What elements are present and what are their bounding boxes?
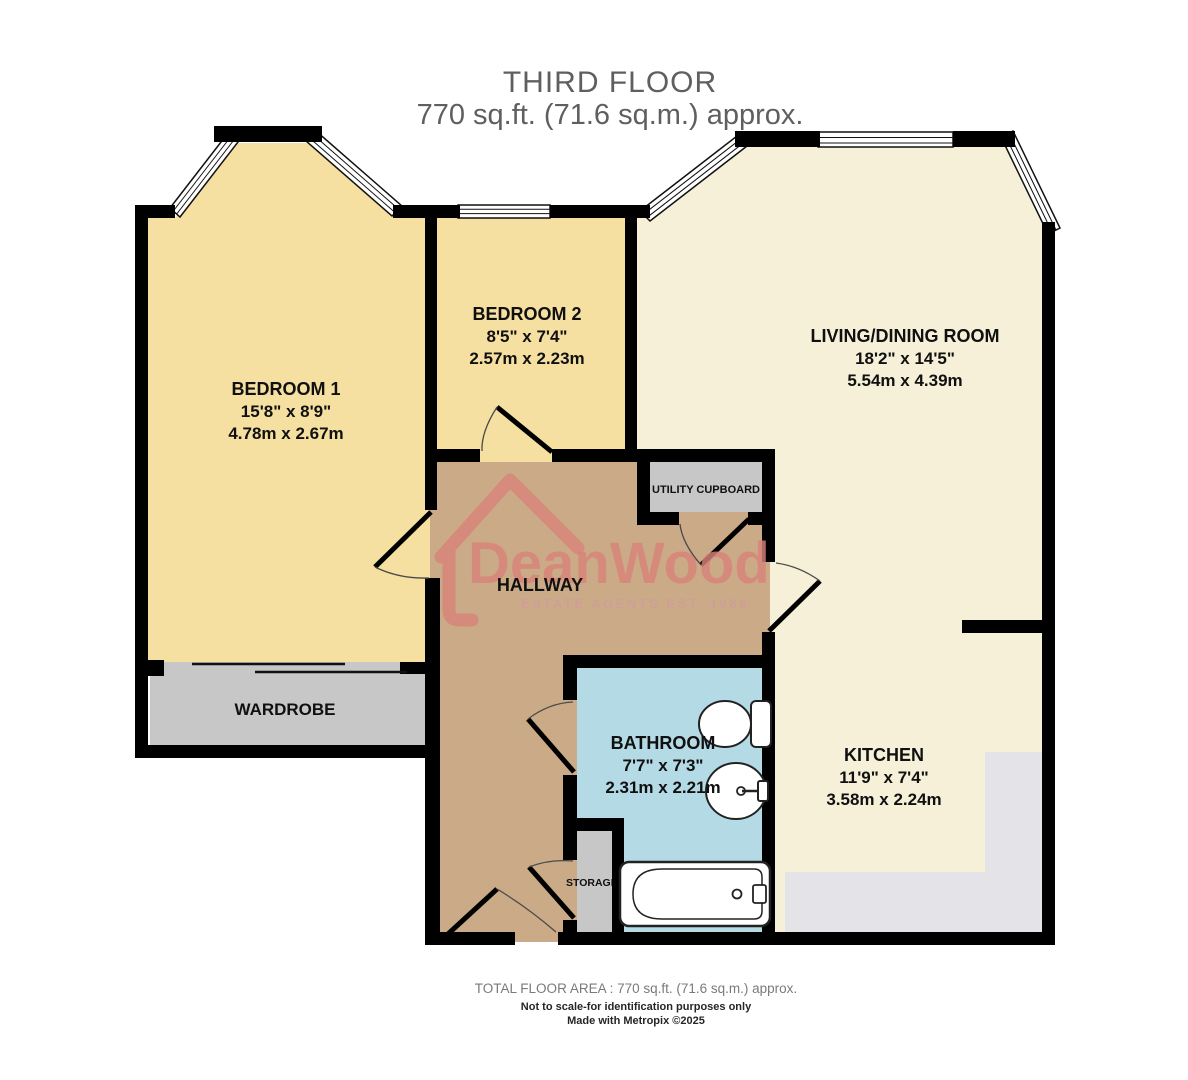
kitchen-name: KITCHEN: [844, 745, 924, 765]
bedroom2-size-imperial: 8'5" x 7'4": [487, 327, 568, 346]
bedroom1-name: BEDROOM 1: [231, 379, 340, 399]
bathroom-size-imperial: 7'7" x 7'3": [623, 756, 704, 775]
floor-title: THIRD FLOOR: [503, 66, 717, 99]
floorplan-page: THIRD FLOOR 770 sq.ft. (71.6 sq.m.) appr…: [0, 0, 1188, 1080]
footer-total-area: TOTAL FLOOR AREA : 770 sq.ft. (71.6 sq.m…: [475, 981, 797, 996]
living-dining-size-imperial: 18'2" x 14'5": [855, 349, 955, 368]
bedroom2-name: BEDROOM 2: [472, 304, 581, 324]
utility-cupboard-label: UTILITY CUPBOARD: [652, 484, 760, 496]
footer-disclaimer: Not to scale-for identification purposes…: [521, 1001, 752, 1013]
logo-tagline-text: ESTATE AGENTS EST. 1986: [521, 596, 749, 611]
bathroom-size-metric: 2.31m x 2.21m: [605, 778, 720, 797]
wardrobe-label: WARDROBE: [234, 700, 335, 719]
bathroom-label: BATHROOM 7'7" x 7'3" 2.31m x 2.21m: [605, 733, 720, 797]
living-dining-name: LIVING/DINING ROOM: [811, 326, 1000, 346]
bedroom1-size-metric: 4.78m x 2.67m: [228, 424, 343, 443]
bathroom-name: BATHROOM: [611, 733, 716, 753]
storage-label: STORAGE: [566, 877, 618, 889]
living-top-window: [818, 132, 953, 147]
bathtub-icon: [620, 862, 770, 926]
bedroom1-size-imperial: 15'8" x 8'9": [241, 402, 331, 421]
footer-credit: Made with Metropix ©2025: [567, 1015, 705, 1027]
bedroom2-window: [458, 205, 550, 218]
bedroom2-label: BEDROOM 2 8'5" x 7'4" 2.57m x 2.23m: [469, 304, 584, 368]
bedroom2-size-metric: 2.57m x 2.23m: [469, 349, 584, 368]
living-dining-size-metric: 5.54m x 4.39m: [847, 371, 962, 390]
floor-area-subtitle: 770 sq.ft. (71.6 sq.m.) approx.: [417, 99, 804, 131]
kitchen-size-metric: 3.58m x 2.24m: [826, 790, 941, 809]
kitchen-size-imperial: 11'9" x 7'4": [839, 768, 928, 787]
floorplan-svg: THIRD FLOOR 770 sq.ft. (71.6 sq.m.) appr…: [0, 0, 1188, 1080]
bedroom1-label: BEDROOM 1 15'8" x 8'9" 4.78m x 2.67m: [228, 379, 343, 443]
hallway-name: HALLWAY: [497, 575, 583, 595]
